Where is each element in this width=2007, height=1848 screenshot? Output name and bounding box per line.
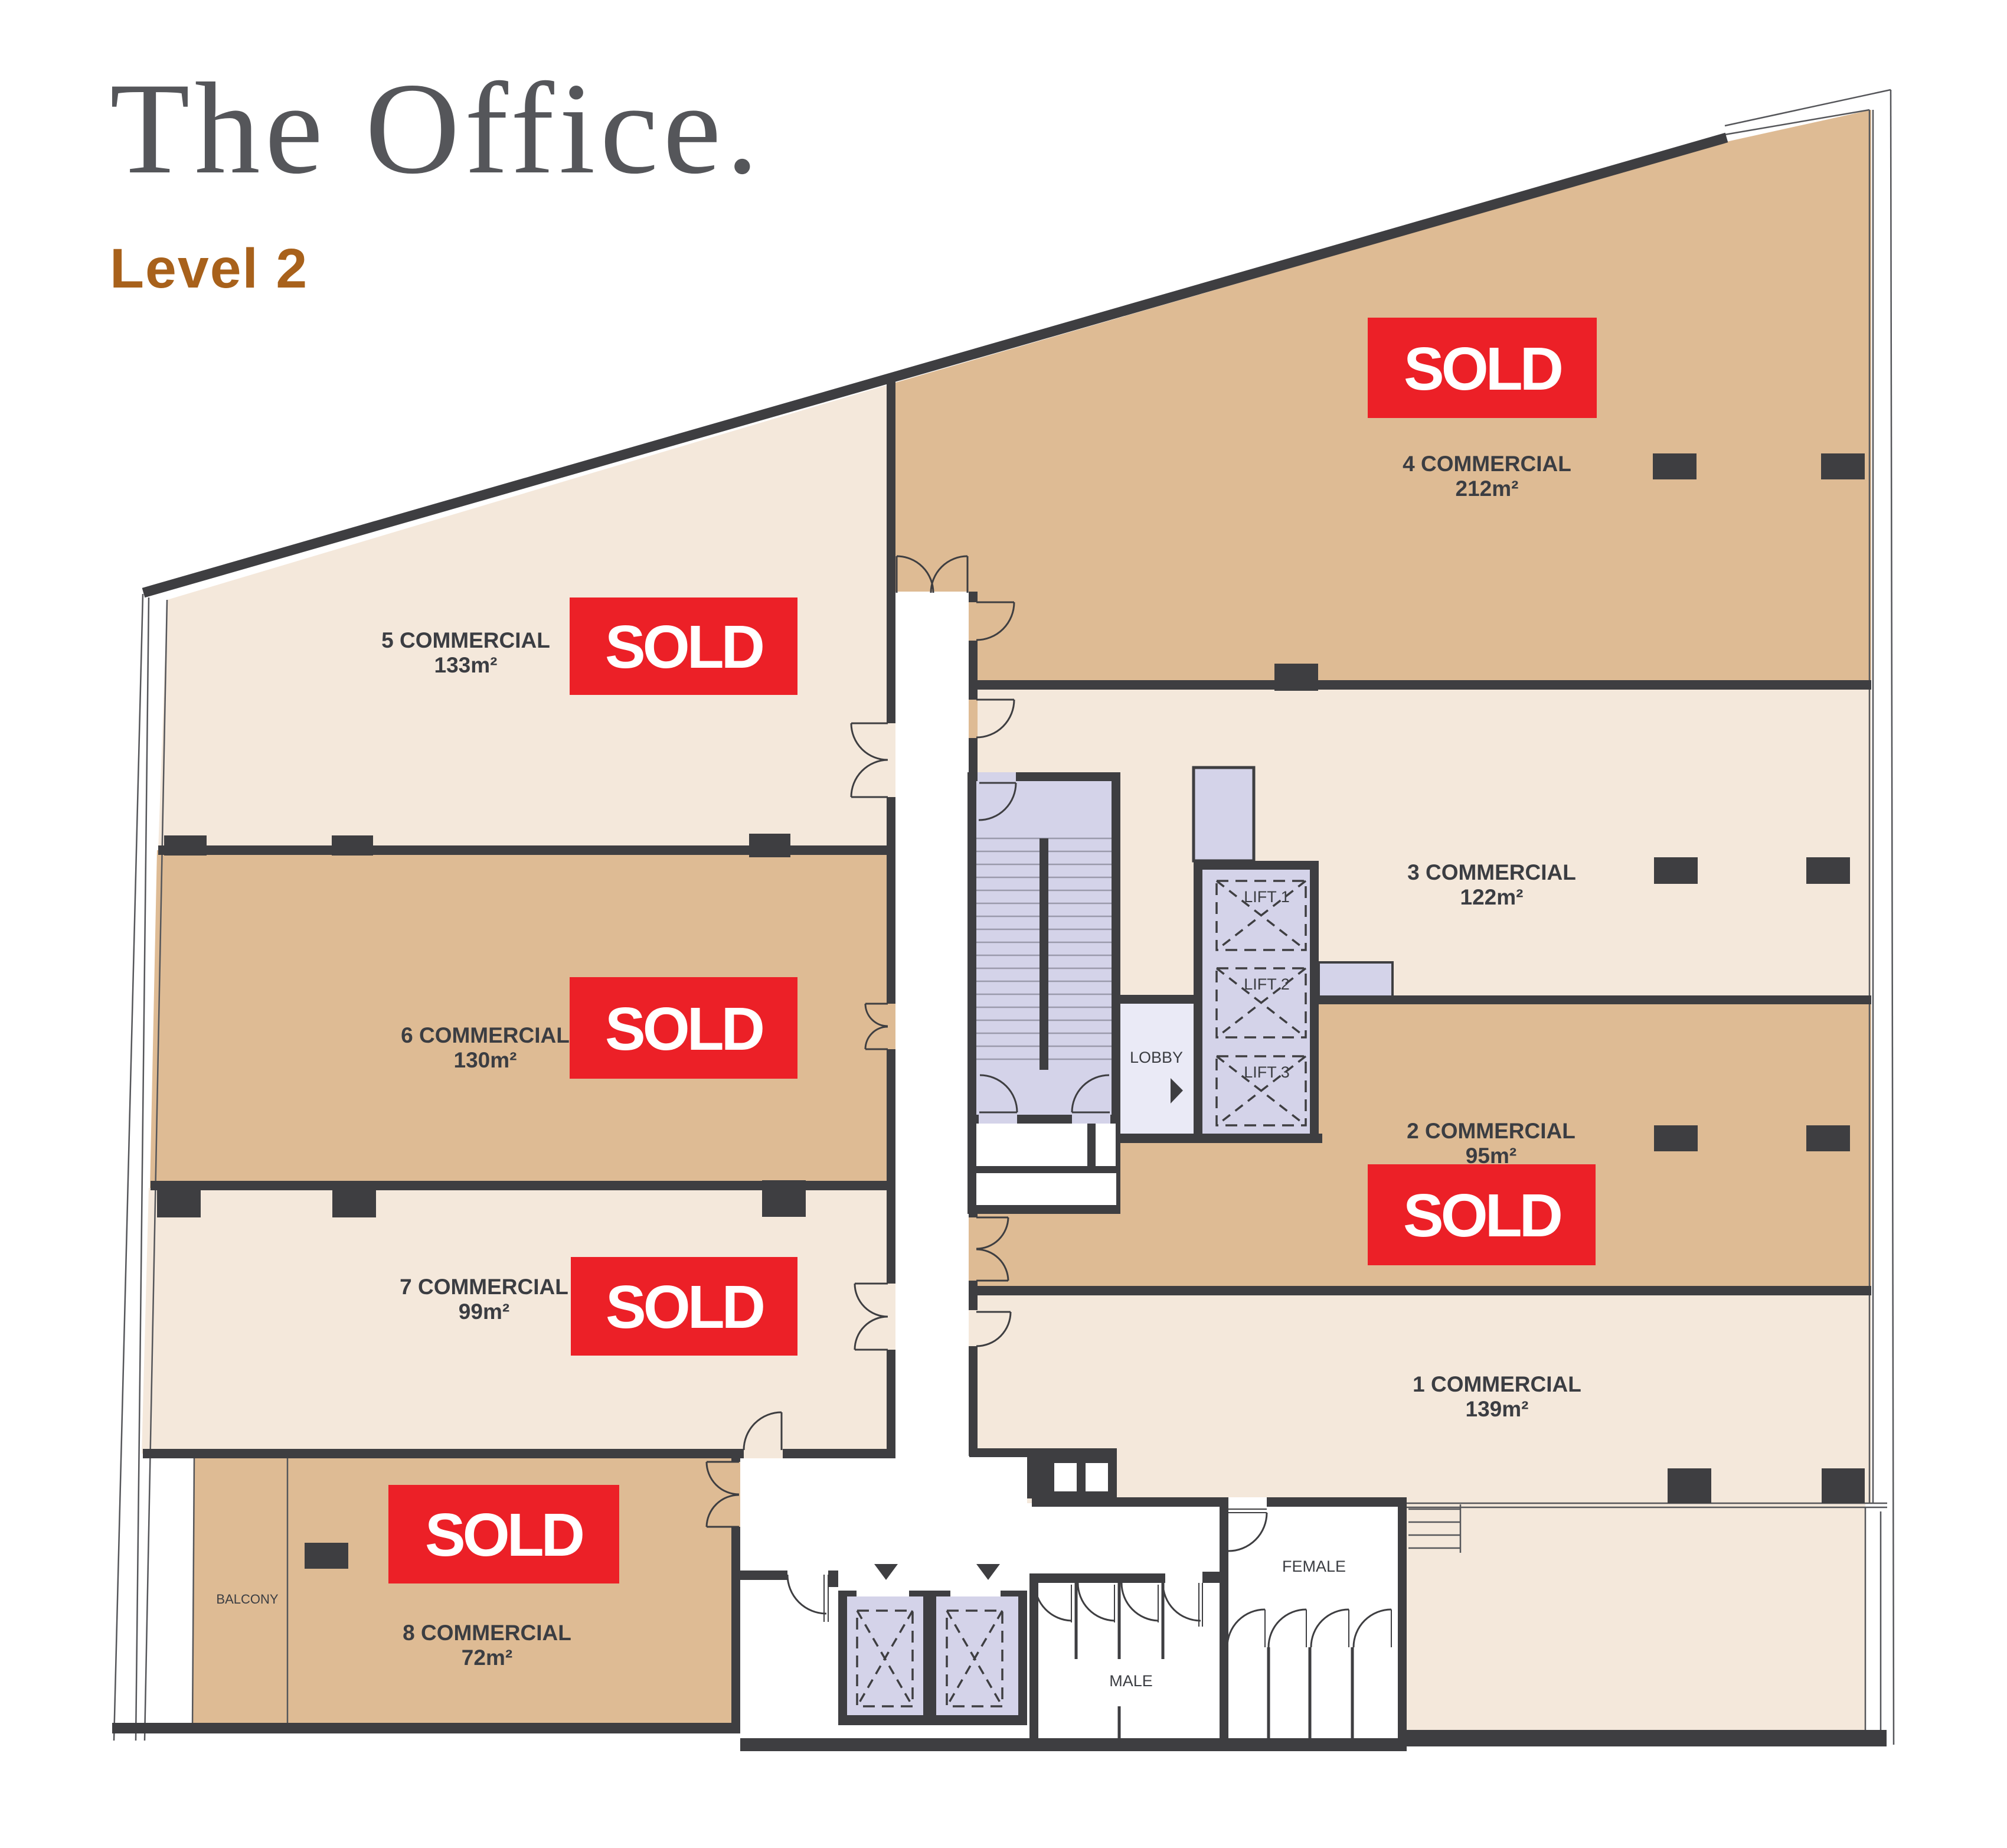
svg-text:FEMALE: FEMALE xyxy=(1282,1558,1346,1575)
svg-text:95m²: 95m² xyxy=(1466,1144,1516,1168)
svg-text:SOLD: SOLD xyxy=(605,995,763,1063)
svg-text:SOLD: SOLD xyxy=(1404,335,1562,403)
svg-text:212m²: 212m² xyxy=(1456,476,1519,501)
svg-text:SOLD: SOLD xyxy=(1403,1181,1561,1249)
svg-text:133m²: 133m² xyxy=(434,653,498,677)
svg-text:Level 2: Level 2 xyxy=(110,237,308,300)
svg-text:139m²: 139m² xyxy=(1466,1397,1529,1421)
svg-text:SOLD: SOLD xyxy=(425,1501,583,1569)
svg-text:LIFT 3: LIFT 3 xyxy=(1244,1063,1290,1081)
svg-text:6 COMMERCIAL: 6 COMMERCIAL xyxy=(401,1023,570,1047)
svg-text:7 COMMERCIAL: 7 COMMERCIAL xyxy=(400,1275,568,1299)
svg-text:The Office.: The Office. xyxy=(110,56,763,201)
svg-text:MALE: MALE xyxy=(1109,1672,1153,1690)
svg-text:LOBBY: LOBBY xyxy=(1130,1049,1183,1066)
svg-text:LIFT 2: LIFT 2 xyxy=(1244,975,1290,993)
svg-text:72m²: 72m² xyxy=(462,1645,512,1670)
svg-text:1 COMMERCIAL: 1 COMMERCIAL xyxy=(1413,1372,1581,1396)
svg-text:BALCONY: BALCONY xyxy=(216,1592,278,1607)
svg-text:130m²: 130m² xyxy=(454,1048,517,1072)
svg-text:4 COMMERCIAL: 4 COMMERCIAL xyxy=(1403,452,1571,476)
svg-text:SOLD: SOLD xyxy=(605,613,763,681)
svg-text:8 COMMERCIAL: 8 COMMERCIAL xyxy=(403,1621,571,1645)
svg-text:3 COMMERCIAL: 3 COMMERCIAL xyxy=(1407,860,1576,884)
svg-text:2 COMMERCIAL: 2 COMMERCIAL xyxy=(1407,1119,1575,1143)
svg-text:122m²: 122m² xyxy=(1460,885,1524,909)
svg-text:5 COMMERCIAL: 5 COMMERCIAL xyxy=(381,628,550,652)
svg-text:SOLD: SOLD xyxy=(606,1273,764,1341)
svg-text:LIFT 1: LIFT 1 xyxy=(1244,888,1290,906)
svg-text:99m²: 99m² xyxy=(459,1300,509,1324)
